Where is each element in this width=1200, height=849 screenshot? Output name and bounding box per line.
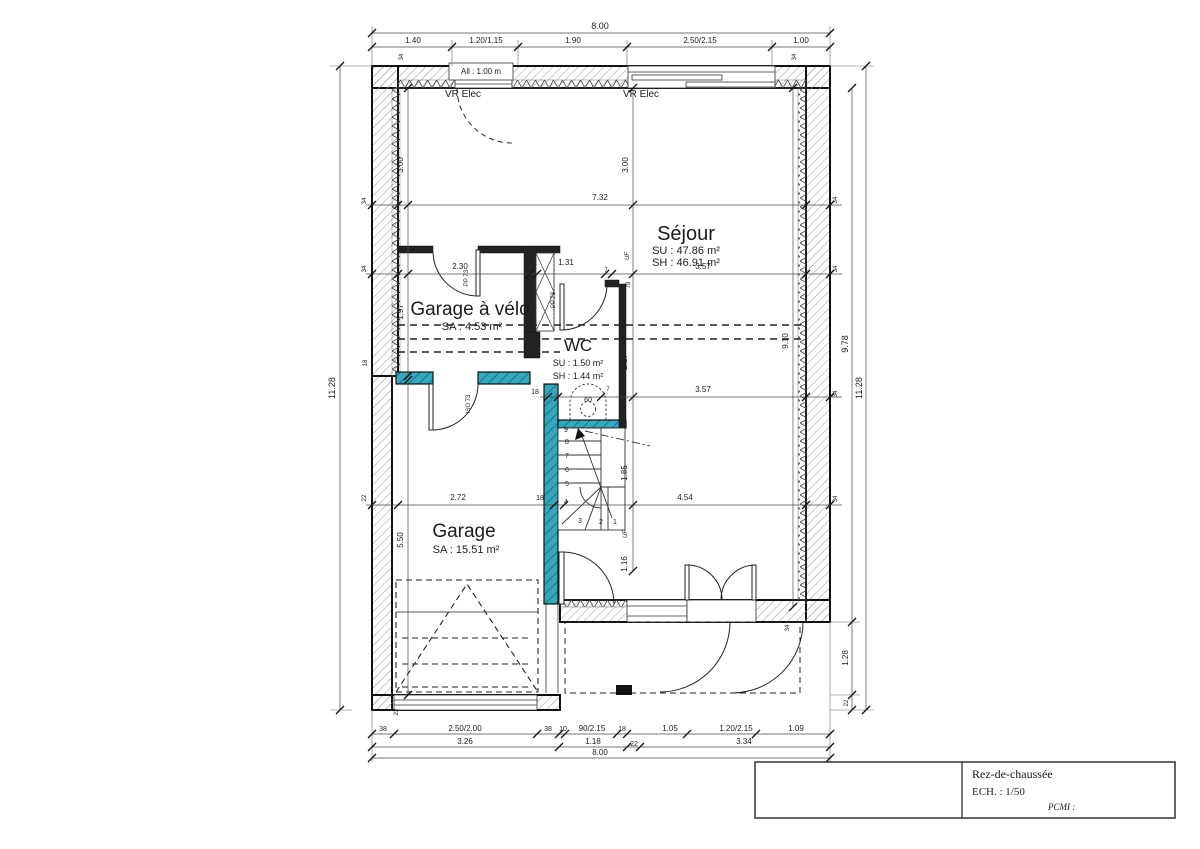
dimension-label: 79 [626,281,632,288]
room-name-garage: Garage [432,521,495,542]
dimension-label: 90/2.15 [579,724,606,733]
dimension-label: 2.72 [450,493,466,502]
dimension-label: 3.57 [695,385,711,394]
dimension-label: 34 [399,53,405,60]
window-bottom [627,600,687,622]
dimension-label: All : 1.00 m [461,67,501,76]
dimension-label: 34 [362,265,368,272]
dimension-label: 1.40 [405,36,421,45]
dimension-label: 3.26 [457,737,473,746]
porch [565,622,800,695]
dimension-label: UF [625,252,631,260]
dimension-label: 1.97 [396,304,405,320]
stair-number: 6 [565,467,569,474]
dimension-label: 1.31 [558,258,574,267]
stair-number: 5 [565,481,569,488]
dimension-label: 1.85 [620,465,629,481]
dimension-label: 1.00 [793,36,809,45]
dimension-label: 5.50 [396,532,405,548]
stair-number: 4 [564,499,568,506]
dimension-lines [330,26,874,762]
stair-number: 8 [565,439,569,446]
dimension-label: PP 73 [551,291,557,308]
dimension-label: 34 [833,196,839,203]
stair-number: 9 [564,427,568,434]
dimension-label: 1.20/1.15 [469,36,503,45]
door-leaf [560,284,564,330]
dimension-label: 3.34 [736,737,752,746]
dimension-label: 34 [833,265,839,272]
dimension-label: 11.28 [327,377,337,399]
dimension-label: 1.05 [662,724,678,733]
french-door-opening [687,600,756,622]
dimension-label: 2.50/2.15 [683,36,717,45]
dimension-label: 38 [379,726,387,733]
dimension-label: 3.57 [695,262,711,271]
dimension-label: 9.10 [781,333,790,349]
door-leaf [476,250,480,296]
dimension-label: VR Elec [445,89,481,100]
door-leaf [559,552,564,604]
dimension-label: 2.50/2.00 [448,724,482,733]
dimension-label: 22 [362,494,368,501]
dimension-label: 22 [844,699,850,706]
stair-number: 1 [613,519,617,526]
dimension-label: VR Elec [623,89,659,100]
dimension-label: 1.20/2.15 [719,724,753,733]
dimension-label: 9.78 [840,335,850,353]
stair-number: 3 [578,518,582,525]
room-su-wc: SU : 1.50 m² [553,358,604,368]
dimension-label: UF [623,530,629,538]
dimension-label: 1.09 [788,724,804,733]
garage-door-opening [394,695,537,710]
dimension-label: 34 [785,624,791,631]
room-name-sejour: Séjour [657,223,715,245]
dimension-label: 8.00 [591,21,609,31]
dimension-label: 1.90 [565,36,581,45]
title-floor-label: Rez-de-chaussée [972,767,1053,781]
dimension-label: 22 [394,708,400,715]
dimension-label: 1.28 [841,650,850,666]
exterior-walls [372,66,830,710]
floor-plan-sheet: Séjour SU : 47.86 m² SH : 46.91 m² Garag… [0,0,1200,849]
dimension-label: 1.18 [585,737,601,746]
dimension-label: 22 [630,741,638,748]
dimension-label: 18 [618,726,626,733]
floor-plan-drawing: Séjour SU : 47.86 m² SH : 46.91 m² Garag… [0,0,1200,849]
room-sa-garage-velo: SA : 4.53 m² [442,321,503,333]
dimension-label: 60 [584,397,592,404]
door-leaf [685,565,689,600]
dimension-label: 3.00 [396,157,405,173]
dimension-label: 18 [536,495,544,502]
dimension-label: 34 [833,495,839,502]
dimension-label: 1.16 [620,556,629,572]
stairs [558,428,650,530]
title-scale-label: ECH. : 1/50 [972,786,1025,798]
dimension-label: 8.00 [592,748,608,757]
room-sh-wc: SH : 1.44 m² [553,371,604,381]
porch-post [616,685,632,695]
dimension-label: 34 [833,390,839,397]
dimension-label: 10 [559,726,567,733]
dimension-label: 11.28 [854,377,864,399]
dimension-label: ISO 73 [466,394,472,413]
dimension-labels: 8.001.401.20/1.151.902.50/2.151.00All : … [327,21,864,757]
dimension-label: 34 [792,53,798,60]
door-leaf [429,384,433,430]
dimension-label: 18 [363,359,369,366]
room-su-sejour: SU : 47.86 m² [652,245,720,257]
dimension-label: 7 [606,387,610,393]
room-name-wc: WC [564,336,592,355]
dimension-label: 7.32 [592,193,608,202]
stair-number: 2 [599,519,603,526]
dimension-label: PP 73 [464,269,470,286]
garage-door [396,580,538,692]
dimension-label: 3.00 [621,157,630,173]
dimension-label: 18 [531,389,539,396]
stair-number: 7 [565,453,569,460]
dimension-label: 38 [544,726,552,733]
dimension-label: 2.17 [620,354,629,370]
room-name-garage-velo: Garage à vélo [410,299,529,320]
dimension-label: 34 [362,197,368,204]
title-block: Rez-de-chaussée ECH. : 1/50 PCMI : [755,762,1175,818]
room-sa-garage: SA : 15.51 m² [433,544,500,556]
title-pcmi-label: PCMI : [1047,802,1075,812]
dimension-label: 2.30 [452,262,468,271]
door-leaf [752,565,756,600]
dimension-label: 4.54 [677,493,693,502]
